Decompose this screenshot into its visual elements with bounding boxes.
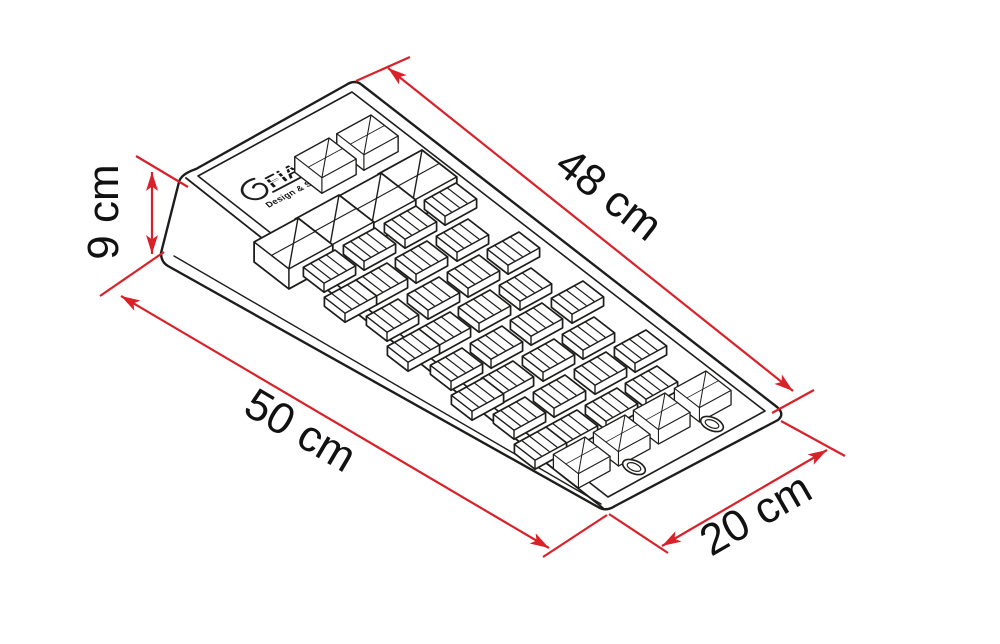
leveling-ramp-dimension-diagram: FIAMMA Design & Style Made in Italy [0,0,1000,644]
dimension-label-9cm: 9 cm [79,164,128,259]
diagram-canvas: FIAMMA Design & Style Made in Italy [0,0,1000,644]
